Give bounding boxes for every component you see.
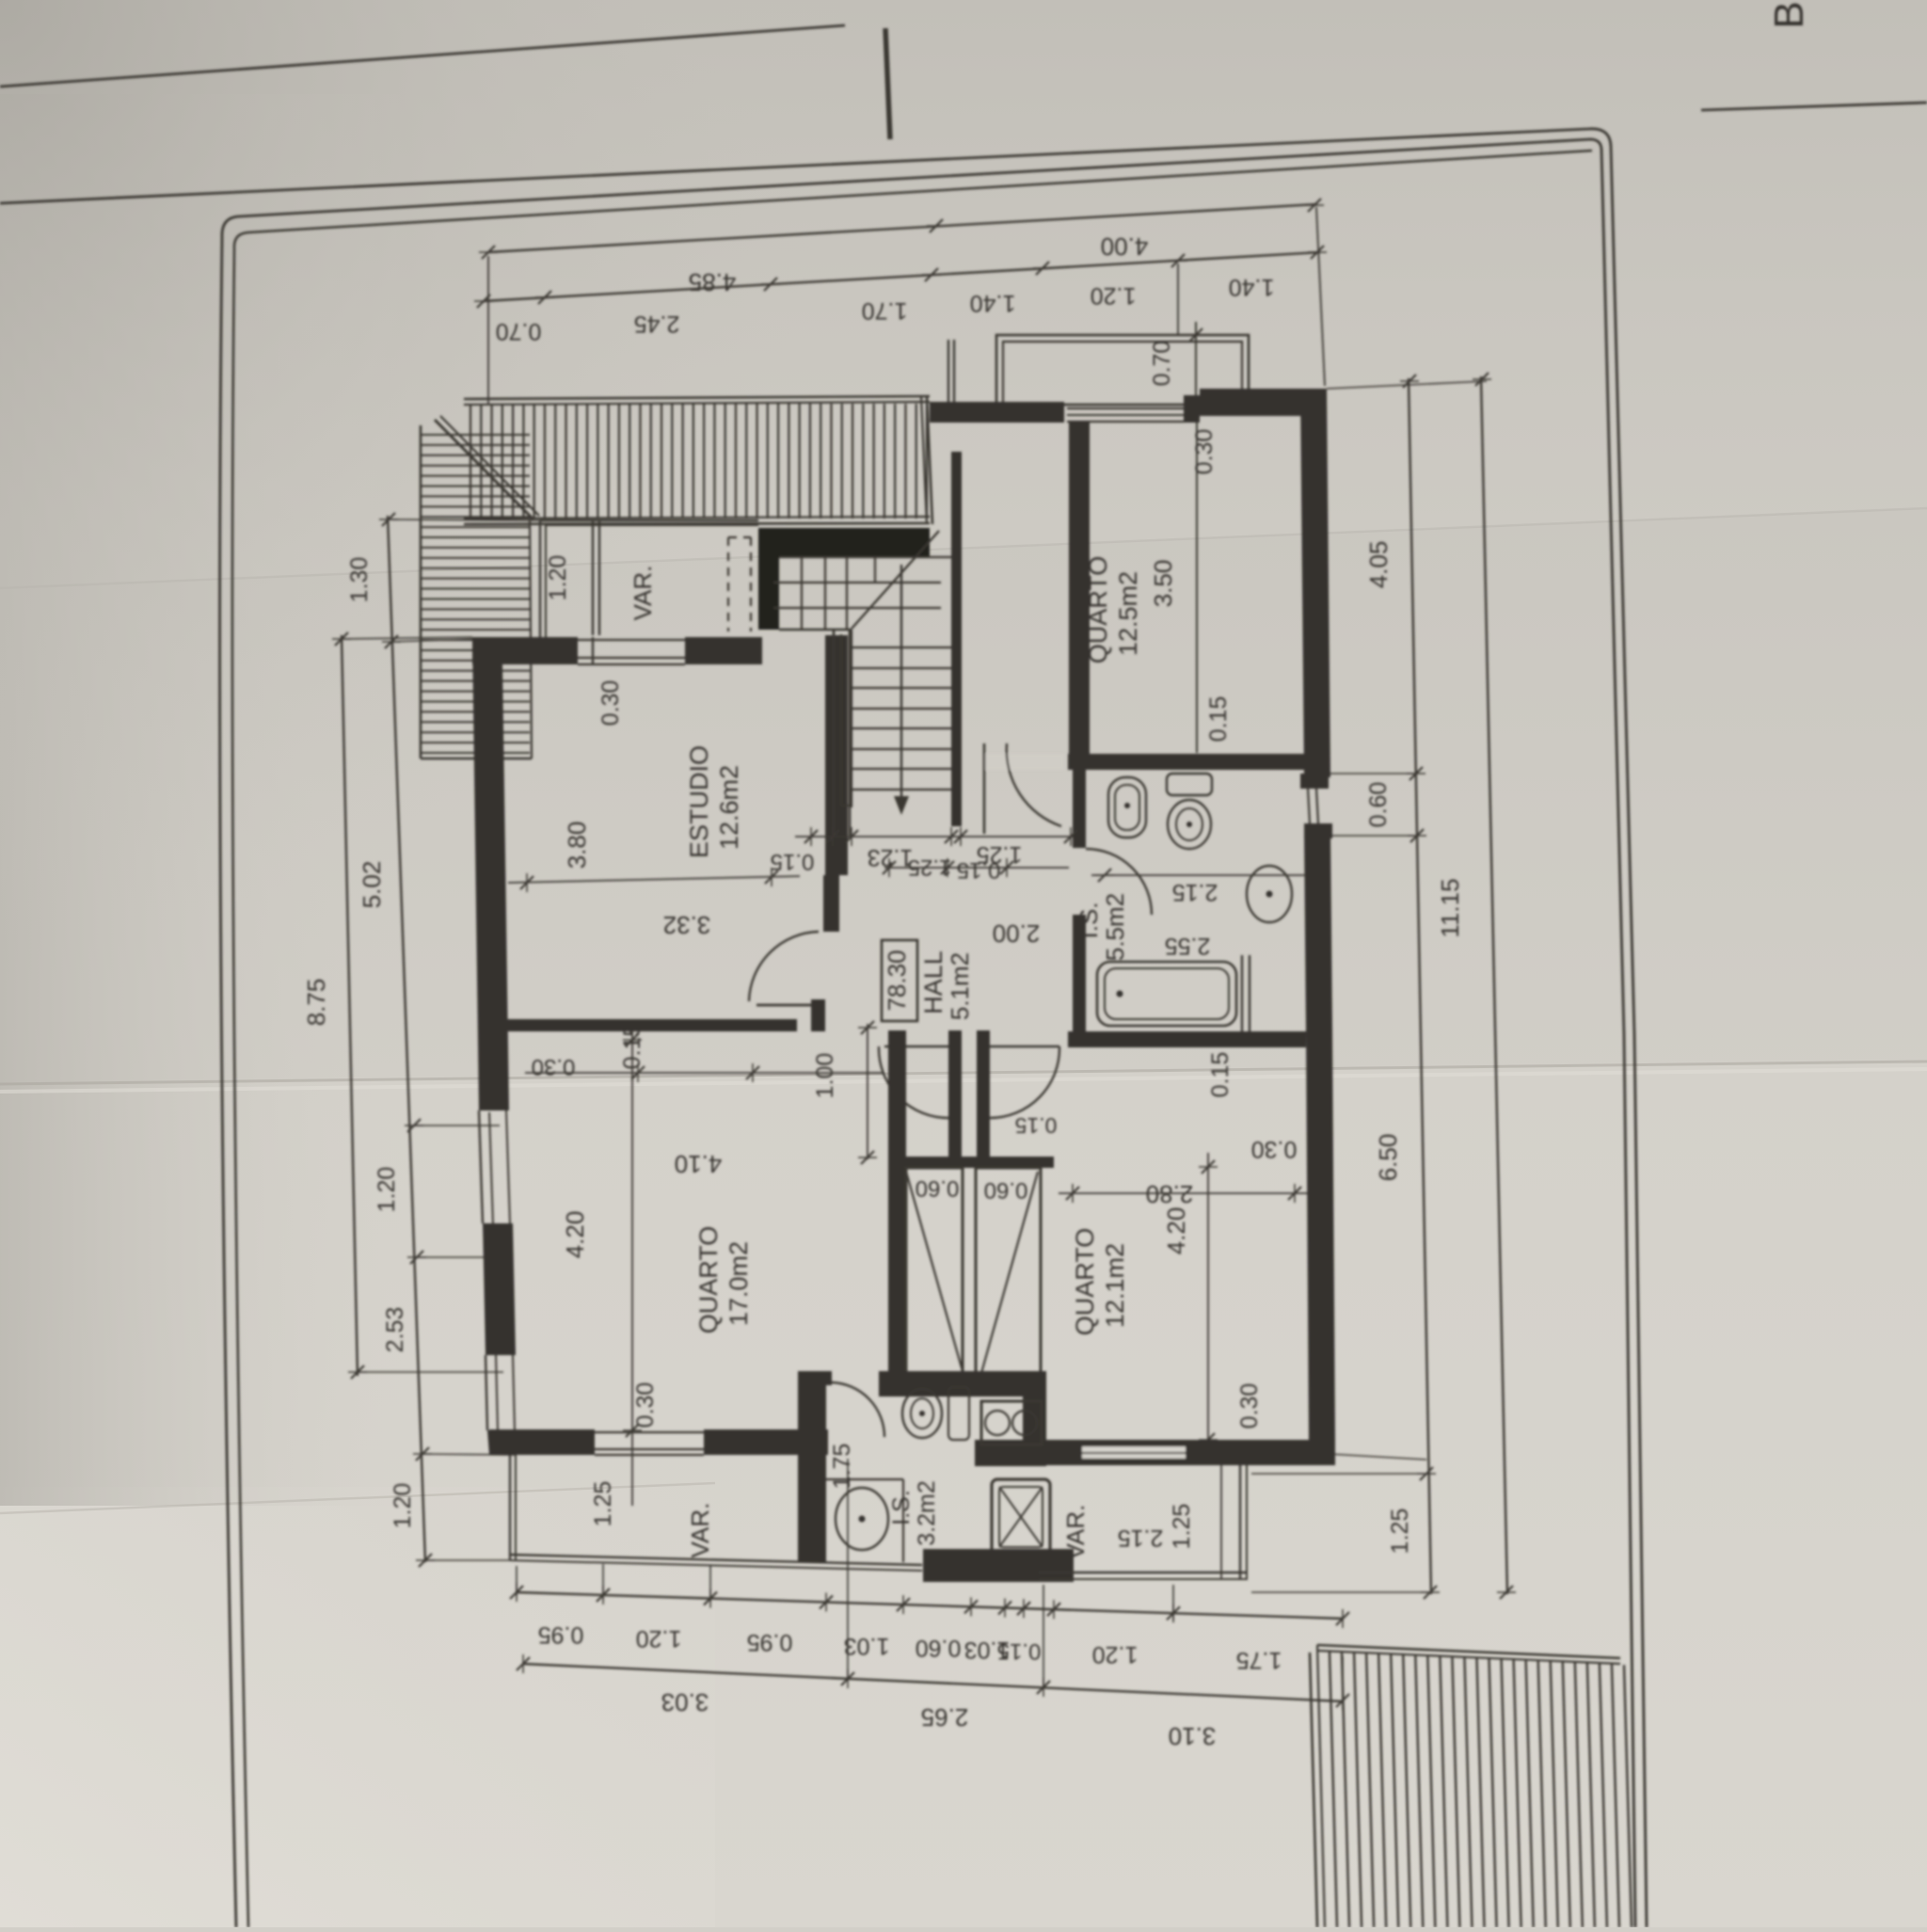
- svg-text:0.15: 0.15: [1015, 1113, 1058, 1138]
- svg-text:2.00: 2.00: [993, 919, 1041, 948]
- svg-text:12.1m2: 12.1m2: [1101, 1243, 1129, 1328]
- svg-text:1.25: 1.25: [1169, 1504, 1195, 1550]
- svg-text:2.15: 2.15: [1118, 1525, 1164, 1551]
- svg-text:12.5m2: 12.5m2: [1114, 571, 1142, 656]
- svg-text:1.20: 1.20: [374, 1167, 400, 1213]
- svg-text:4.85: 4.85: [689, 268, 737, 296]
- svg-text:0.60: 0.60: [916, 1635, 962, 1661]
- svg-text:3.50: 3.50: [1149, 560, 1177, 608]
- svg-text:1.25: 1.25: [908, 854, 952, 880]
- svg-text:QUARTO: QUARTO: [694, 1226, 723, 1334]
- svg-text:0.15: 0.15: [997, 1638, 1042, 1664]
- svg-text:1.30: 1.30: [346, 557, 373, 603]
- svg-text:0.95: 0.95: [538, 1621, 584, 1648]
- svg-text:1.75: 1.75: [829, 1444, 855, 1490]
- svg-text:2.55: 2.55: [1165, 933, 1211, 959]
- svg-text:78.30: 78.30: [883, 950, 911, 1011]
- svg-text:2.65: 2.65: [921, 1703, 969, 1732]
- svg-text:3.32: 3.32: [663, 911, 711, 939]
- svg-text:1.40: 1.40: [970, 290, 1016, 316]
- svg-text:2.15: 2.15: [1172, 879, 1218, 905]
- svg-text:1.75: 1.75: [1236, 1647, 1282, 1673]
- svg-text:12.6m2: 12.6m2: [715, 765, 743, 850]
- svg-text:0.15: 0.15: [1205, 696, 1232, 742]
- svg-text:2.80: 2.80: [1146, 1180, 1194, 1208]
- svg-text:I.S.: I.S.: [1075, 902, 1103, 938]
- svg-text:1.70: 1.70: [862, 297, 908, 324]
- svg-text:VAR.: VAR.: [629, 566, 657, 621]
- svg-text:ESTUDIO: ESTUDIO: [685, 745, 713, 858]
- svg-text:VAR.: VAR.: [1061, 1505, 1090, 1560]
- svg-text:0.30: 0.30: [632, 1382, 659, 1429]
- svg-text:0.30: 0.30: [1236, 1383, 1263, 1429]
- svg-text:1.25: 1.25: [1387, 1509, 1413, 1555]
- svg-text:2.53: 2.53: [382, 1307, 408, 1353]
- svg-text:3.2m2: 3.2m2: [914, 1480, 940, 1545]
- svg-text:0.15: 0.15: [1207, 1052, 1234, 1098]
- svg-text:4.10: 4.10: [675, 1150, 723, 1178]
- svg-text:VAR.: VAR.: [686, 1503, 714, 1558]
- svg-text:0.70: 0.70: [496, 318, 542, 344]
- svg-text:QUARTO: QUARTO: [1084, 556, 1112, 664]
- svg-text:5.1m2: 5.1m2: [946, 952, 974, 1020]
- svg-text:6.50: 6.50: [1374, 1134, 1402, 1182]
- svg-text:1.20: 1.20: [390, 1483, 416, 1529]
- svg-text:5.02: 5.02: [358, 861, 386, 909]
- svg-text:3.10: 3.10: [1169, 1722, 1217, 1750]
- svg-text:1.25: 1.25: [590, 1481, 616, 1527]
- svg-text:1.20: 1.20: [636, 1625, 682, 1652]
- svg-text:4.20: 4.20: [561, 1211, 589, 1259]
- svg-text:17.0m2: 17.0m2: [725, 1241, 753, 1326]
- svg-text:0.60: 0.60: [1365, 782, 1392, 828]
- svg-text:0.95: 0.95: [747, 1629, 793, 1655]
- svg-text:0.15: 0.15: [957, 857, 1001, 883]
- svg-text:B: B: [1766, 1, 1812, 28]
- svg-text:5.5m2: 5.5m2: [1101, 893, 1129, 961]
- svg-text:4.05: 4.05: [1364, 541, 1393, 589]
- svg-text:1.20: 1.20: [1091, 282, 1137, 309]
- svg-text:1.20: 1.20: [1092, 1641, 1139, 1668]
- svg-text:I.S.: I.S.: [888, 1490, 915, 1525]
- svg-text:0.30: 0.30: [597, 680, 624, 726]
- svg-text:3.80: 3.80: [563, 822, 591, 870]
- svg-text:4.00: 4.00: [1101, 232, 1149, 261]
- svg-text:0.60: 0.60: [984, 1177, 1028, 1203]
- svg-text:0.60: 0.60: [916, 1175, 960, 1201]
- svg-text:8.75: 8.75: [302, 979, 330, 1027]
- svg-text:4.20: 4.20: [1162, 1207, 1190, 1255]
- svg-text:QUARTO: QUARTO: [1071, 1228, 1099, 1336]
- svg-text:0.70: 0.70: [1149, 341, 1175, 387]
- svg-text:0.30: 0.30: [1251, 1136, 1298, 1162]
- svg-text:HALL: HALL: [919, 950, 948, 1014]
- svg-text:0.30: 0.30: [532, 1054, 576, 1079]
- svg-text:3.03: 3.03: [661, 1688, 709, 1716]
- svg-text:11.15: 11.15: [1436, 878, 1464, 937]
- svg-text:2.45: 2.45: [634, 311, 680, 337]
- svg-text:0.30: 0.30: [1191, 429, 1218, 475]
- svg-text:1.40: 1.40: [1229, 274, 1275, 300]
- svg-text:1.00: 1.00: [812, 1053, 838, 1099]
- svg-text:1.20: 1.20: [545, 555, 571, 601]
- svg-text:1.03: 1.03: [844, 1633, 890, 1659]
